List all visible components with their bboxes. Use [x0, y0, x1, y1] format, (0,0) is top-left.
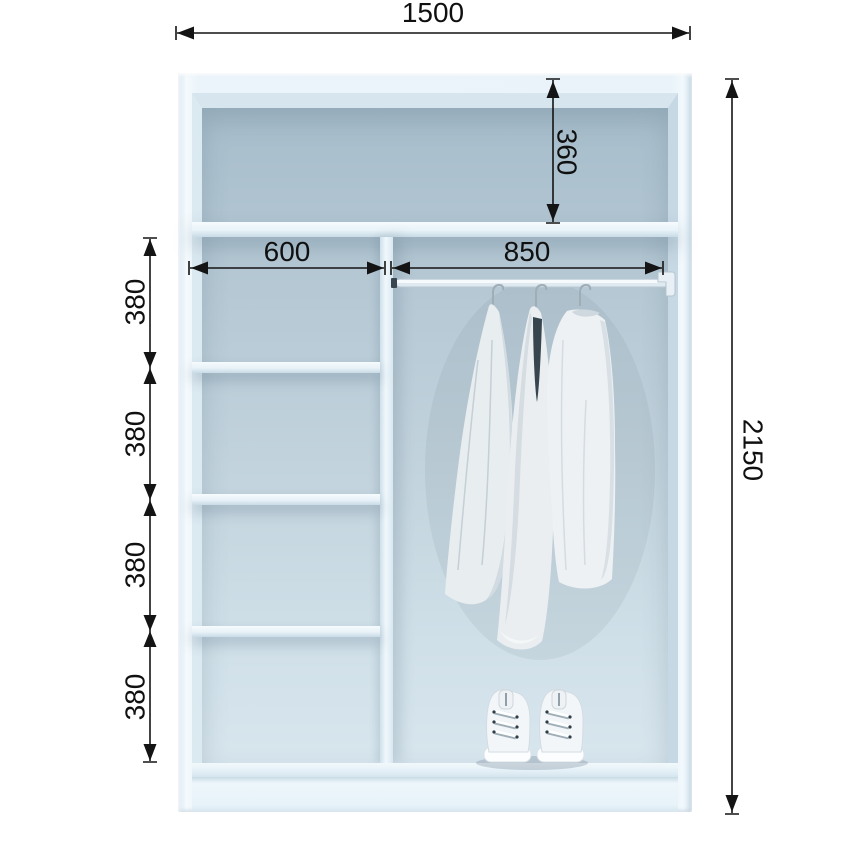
dim-label-shelf-column-width: 600 [264, 236, 311, 267]
dim-overall-height: 2150 [725, 79, 769, 814]
arrow-up-icon [144, 239, 157, 256]
dim-top-shelf-drop: 360 [546, 79, 583, 223]
dim-label-shelf-gap-1: 380 [120, 279, 151, 326]
arrow-left-icon [393, 262, 410, 275]
dim-overall-width: 1500 [176, 0, 690, 40]
arrow-right-icon [645, 262, 662, 275]
dim-label-top-shelf-drop: 360 [552, 129, 583, 176]
arrow-down-icon [547, 204, 560, 221]
dim-hanging-rail-width: 850 [391, 236, 663, 275]
dim-shelf-column-width: 600 [189, 236, 385, 275]
arrow-down-icon [144, 744, 157, 761]
arrow-left-icon [191, 262, 208, 275]
arrow-right-icon [367, 262, 384, 275]
arrow-up-icon [547, 81, 560, 98]
wardrobe-dimension-diagram: 1500 360 600 850 2150 [0, 0, 868, 868]
dim-label-overall-height: 2150 [738, 419, 769, 481]
arrow-up-icon [726, 81, 739, 98]
dim-overall-width-line [176, 26, 690, 40]
arrow-right-icon [672, 27, 689, 40]
dim-label-hanging-rail-width: 850 [504, 236, 551, 267]
dim-label-shelf-gap-2: 380 [120, 411, 151, 458]
arrow-left-icon [177, 27, 194, 40]
dimension-overlay: 1500 360 600 850 2150 [0, 0, 868, 868]
dim-2150-line [725, 79, 739, 814]
dim-label-shelf-gap-4: 380 [120, 674, 151, 721]
dim-shelf-spacing-chain: 380 380 380 380 [120, 238, 158, 762]
dim-label-shelf-gap-3: 380 [120, 542, 151, 589]
dim-label-overall-width: 1500 [402, 0, 464, 28]
arrow-down-icon [726, 795, 739, 812]
